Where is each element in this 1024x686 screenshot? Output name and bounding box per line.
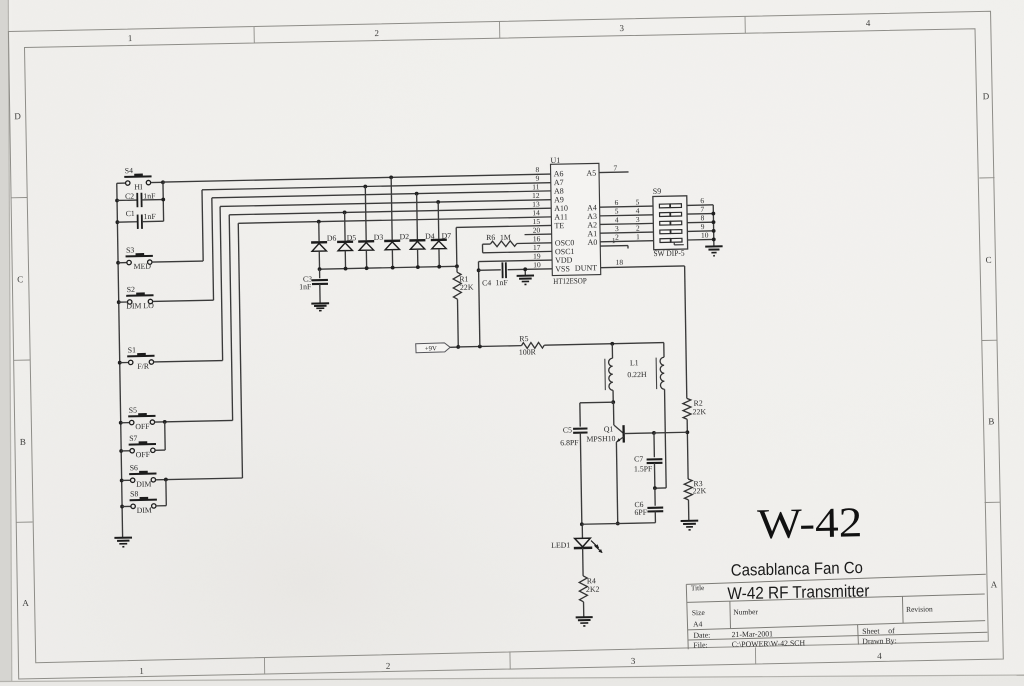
svg-text:B: B [988,416,994,426]
svg-text:C4: C4 [482,278,491,287]
svg-text:HT12ESOP: HT12ESOP [553,276,587,286]
svg-text:Revision: Revision [906,604,933,614]
svg-text:1nF: 1nF [496,278,509,287]
svg-text:A: A [991,579,998,589]
svg-text:4: 4 [866,18,871,28]
svg-text:W-42 RF Transmitter: W-42 RF Transmitter [727,581,870,603]
svg-text:100R: 100R [519,347,537,356]
svg-text:1: 1 [128,33,133,43]
svg-text:DIM: DIM [136,479,151,488]
svg-text:S6: S6 [130,463,138,472]
svg-text:D: D [983,91,990,101]
svg-text:6: 6 [700,196,704,205]
svg-text:LED1: LED1 [551,540,570,549]
svg-text:18: 18 [615,258,623,267]
svg-text:S2: S2 [127,285,135,294]
svg-text:OFF: OFF [135,422,150,431]
svg-text:DUNT: DUNT [575,263,597,272]
svg-text:D6: D6 [327,234,337,243]
svg-text:S8: S8 [130,489,138,498]
svg-text:4: 4 [877,651,882,661]
svg-text:D: D [14,111,21,121]
svg-text:0.22H: 0.22H [627,370,647,379]
svg-text:1M: 1M [500,233,511,242]
svg-text:C1: C1 [126,209,135,218]
svg-text:MPSH10: MPSH10 [586,434,615,444]
svg-text:R5: R5 [519,334,528,343]
svg-text:21-Mar-2001: 21-Mar-2001 [732,629,774,639]
svg-text:2: 2 [374,28,379,38]
svg-text:File:: File: [693,640,707,649]
svg-text:Casablanca Fan Co: Casablanca Fan Co [731,559,863,580]
svg-text:22K: 22K [693,486,707,495]
svg-text:2: 2 [386,661,391,671]
svg-text:HI: HI [134,182,143,191]
svg-text:1nF: 1nF [144,212,157,221]
svg-text:6.8PF: 6.8PF [560,438,579,447]
svg-text:C: C [17,274,23,284]
svg-text:6PF: 6PF [634,508,647,517]
svg-text:D5: D5 [347,233,357,242]
svg-text:D3: D3 [374,233,384,242]
svg-text:S3: S3 [126,246,134,255]
svg-text:A4: A4 [693,619,703,628]
svg-text:F/R: F/R [137,362,150,371]
svg-text:Size: Size [692,608,706,617]
svg-text:4: 4 [615,215,619,224]
svg-text:Q1: Q1 [604,425,614,434]
svg-text:3: 3 [636,215,640,224]
svg-text:VSS: VSS [555,264,570,273]
svg-text:C2: C2 [125,192,134,201]
svg-text:7: 7 [613,163,617,172]
svg-text:C:\POWER\W-42.SCH: C:\POWER\W-42.SCH [732,638,806,649]
svg-text:S7: S7 [129,434,137,443]
svg-text:Sheet: Sheet [862,626,880,635]
svg-text:Date:: Date: [693,631,710,640]
svg-text:OFF: OFF [136,450,151,459]
svg-text:A0: A0 [588,238,598,247]
svg-text:C: C [986,255,992,265]
svg-text:10: 10 [701,231,709,240]
svg-text:+9V: +9V [425,345,437,352]
svg-text:R6: R6 [486,233,495,242]
svg-text:W-42: W-42 [757,499,863,548]
svg-text:22K: 22K [460,283,474,292]
svg-text:D7: D7 [442,231,452,240]
svg-text:A5: A5 [586,169,596,178]
svg-text:L1: L1 [630,358,639,367]
svg-text:DIM: DIM [137,506,152,515]
svg-text:Number: Number [733,607,758,617]
svg-text:1nF: 1nF [299,282,312,291]
svg-text:3: 3 [619,23,624,33]
svg-text:U1: U1 [550,156,560,165]
svg-text:1: 1 [139,666,144,676]
svg-text:2: 2 [615,233,619,242]
svg-text:C7: C7 [634,454,643,463]
svg-text:MED: MED [134,262,152,271]
svg-text:2K2: 2K2 [586,585,600,594]
svg-text:D2: D2 [399,232,409,241]
svg-text:Title: Title [691,584,704,592]
svg-text:1.5PF: 1.5PF [634,464,653,473]
svg-text:22K: 22K [693,407,707,416]
svg-text:SW DIP-5: SW DIP-5 [653,249,684,259]
svg-text:A: A [22,598,29,608]
svg-text:1: 1 [636,232,640,241]
svg-text:DIM LO: DIM LO [126,301,154,311]
svg-text:of: of [888,626,895,635]
svg-text:TE: TE [554,221,564,230]
svg-text:S1: S1 [128,345,136,354]
svg-text:B: B [20,437,26,447]
svg-text:C5: C5 [563,425,572,434]
svg-text:10: 10 [533,260,541,269]
svg-text:S9: S9 [653,187,662,196]
svg-text:S4: S4 [125,166,133,175]
svg-text:1nF: 1nF [143,191,156,200]
svg-text:Drawn By:: Drawn By: [862,636,897,646]
svg-text:3: 3 [631,656,636,666]
svg-text:S5: S5 [129,406,137,415]
